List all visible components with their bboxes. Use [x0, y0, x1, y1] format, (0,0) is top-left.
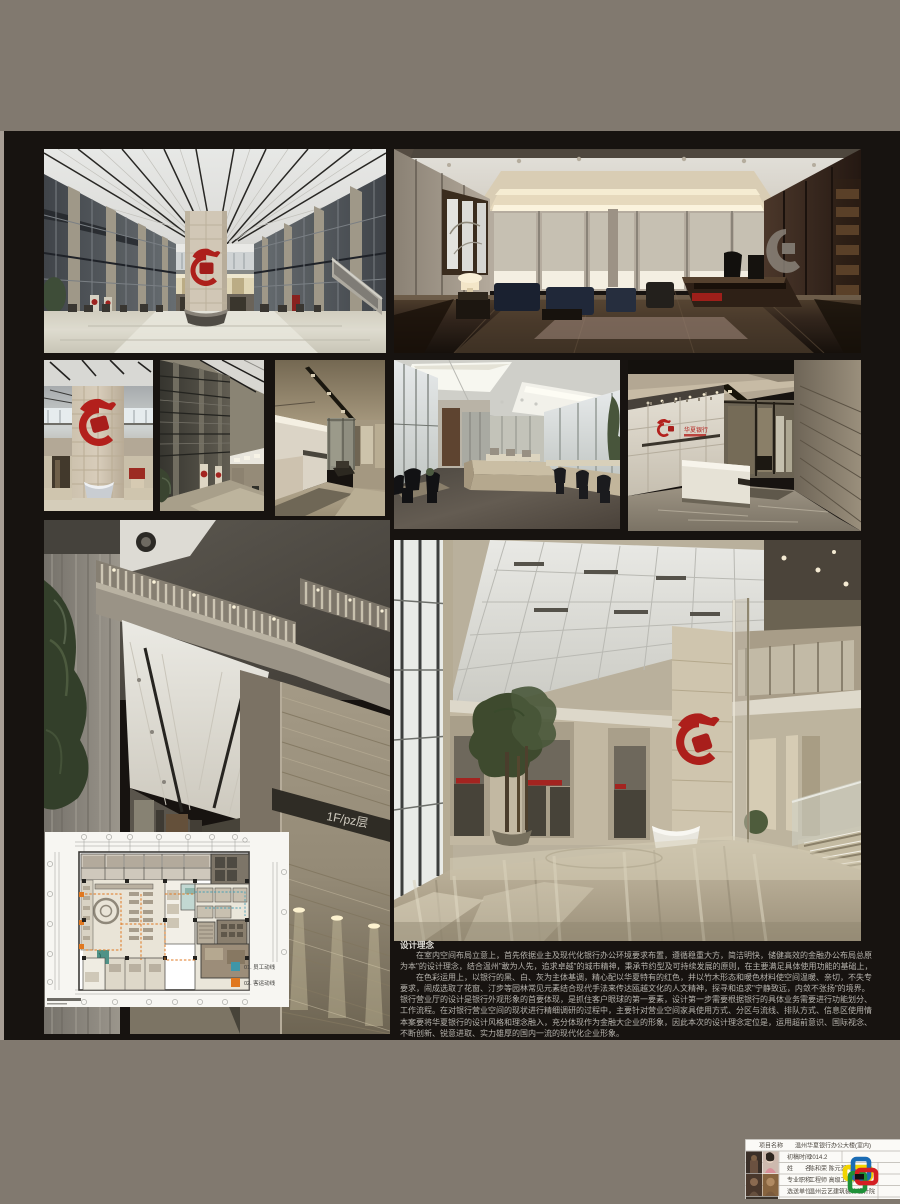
- svg-text:初稿时间: 初稿时间: [787, 1153, 811, 1161]
- svg-text:专业职称: 专业职称: [787, 1176, 811, 1184]
- svg-text:项目名称: 项目名称: [759, 1142, 783, 1150]
- svg-text:选送单位: 选送单位: [787, 1188, 811, 1196]
- svg-text:01. 员工动线: 01. 员工动线: [244, 963, 276, 971]
- svg-text:2014.2: 2014.2: [809, 1155, 828, 1161]
- svg-text:姓 名: 姓 名: [787, 1165, 811, 1173]
- svg-text:温州华夏银行办公大楼(室内): 温州华夏银行办公大楼(室内): [795, 1142, 871, 1150]
- svg-text:02. 客运动线: 02. 客运动线: [244, 979, 276, 987]
- svg-text:华夏银行: 华夏银行: [684, 426, 708, 434]
